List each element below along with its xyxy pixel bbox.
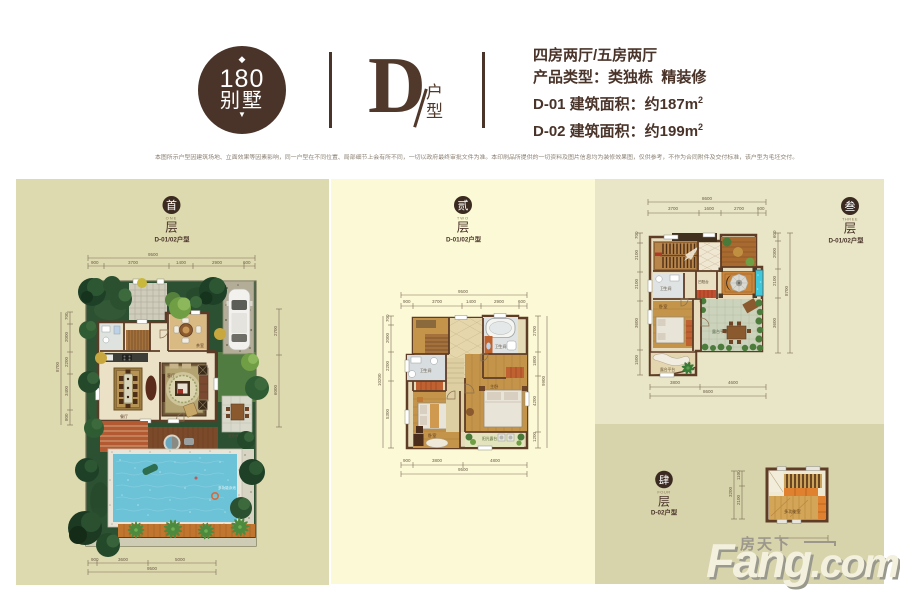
svg-text:1400: 1400 <box>466 299 477 304</box>
svg-text:2700: 2700 <box>273 325 278 336</box>
svg-text:3800: 3800 <box>670 380 681 385</box>
svg-text:8600: 8600 <box>702 196 713 201</box>
svg-text:D-01/02户型: D-01/02户型 <box>155 235 191 244</box>
svg-text:餐厅: 餐厅 <box>120 413 128 419</box>
svg-text:3700: 3700 <box>668 206 679 211</box>
svg-text:3600: 3600 <box>772 317 777 328</box>
svg-text:9500: 9500 <box>458 289 469 294</box>
svg-text:3600: 3600 <box>634 317 639 328</box>
svg-text:5300: 5300 <box>385 408 390 419</box>
svg-text:客厅: 客厅 <box>167 372 175 378</box>
svg-text:2000: 2000 <box>772 247 777 258</box>
svg-text:贰: 贰 <box>458 198 469 212</box>
svg-text:9500: 9500 <box>458 467 469 472</box>
svg-text:3200: 3200 <box>728 486 733 497</box>
svg-text:9900: 9900 <box>541 375 546 386</box>
svg-text:600: 600 <box>772 230 777 238</box>
svg-text:2700: 2700 <box>532 325 537 336</box>
svg-text:主卧: 主卧 <box>490 383 498 390</box>
svg-text:700: 700 <box>64 312 69 320</box>
svg-text:卧室: 卧室 <box>659 303 667 310</box>
svg-text:700: 700 <box>634 231 639 239</box>
svg-text:2100: 2100 <box>772 275 777 286</box>
svg-text:2100: 2100 <box>736 494 741 505</box>
svg-text:5000: 5000 <box>175 557 186 562</box>
svg-text:D-01/02户型: D-01/02户型 <box>446 235 482 244</box>
svg-text:露台平台: 露台平台 <box>660 367 675 372</box>
svg-text:2100: 2100 <box>634 278 639 289</box>
svg-text:阳光露台: 阳光露台 <box>482 436 497 441</box>
svg-text:2200: 2200 <box>64 356 69 367</box>
svg-text:900: 900 <box>403 458 411 463</box>
svg-text:9500: 9500 <box>147 566 158 571</box>
svg-text:凹阳台: 凹阳台 <box>698 279 709 284</box>
svg-text:1100: 1100 <box>736 470 741 480</box>
svg-text:卫生间: 卫生间 <box>660 286 672 291</box>
svg-text:卫生间: 卫生间 <box>495 344 507 349</box>
svg-text:4600: 4600 <box>728 380 739 385</box>
svg-text:D-01/02户型: D-01/02户型 <box>829 236 865 245</box>
svg-text:1200: 1200 <box>532 431 537 442</box>
svg-text:9500: 9500 <box>148 252 159 257</box>
svg-text:多功能泳池: 多功能泳池 <box>218 485 236 490</box>
svg-text:700: 700 <box>385 314 390 322</box>
svg-text:1800: 1800 <box>532 355 537 366</box>
svg-text:8700: 8700 <box>784 285 789 296</box>
svg-text:首: 首 <box>166 198 177 212</box>
svg-text:4200: 4200 <box>532 395 537 406</box>
svg-text:2100: 2100 <box>634 249 639 260</box>
svg-text:卧室: 卧室 <box>428 432 436 439</box>
svg-text:多功能室: 多功能室 <box>784 508 801 515</box>
svg-text:800: 800 <box>64 413 69 421</box>
svg-text:3700: 3700 <box>128 260 139 265</box>
svg-text:层: 层 <box>165 221 178 235</box>
svg-text:1600: 1600 <box>704 206 715 211</box>
svg-text:D-02户型: D-02户型 <box>651 508 678 517</box>
svg-text:8700: 8700 <box>55 361 60 372</box>
svg-text:8600: 8600 <box>703 389 714 394</box>
svg-text:2700: 2700 <box>734 206 745 211</box>
svg-text:3700: 3700 <box>432 299 443 304</box>
svg-text:3600: 3600 <box>118 557 129 562</box>
svg-text:叁: 叁 <box>845 199 856 213</box>
svg-text:900: 900 <box>91 557 99 562</box>
svg-text:2900: 2900 <box>212 260 223 265</box>
svg-text:2900: 2900 <box>494 299 505 304</box>
svg-text:层: 层 <box>658 495 670 509</box>
svg-text:卫生间: 卫生间 <box>420 368 432 373</box>
svg-text:1500: 1500 <box>634 354 639 365</box>
svg-text:10200: 10200 <box>377 373 382 386</box>
svg-text:1400: 1400 <box>176 260 187 265</box>
svg-text:3400: 3400 <box>64 385 69 396</box>
svg-text:3800: 3800 <box>432 458 443 463</box>
svg-text:900: 900 <box>403 299 411 304</box>
svg-text:茶室: 茶室 <box>196 342 204 348</box>
svg-text:2000: 2000 <box>64 331 69 342</box>
svg-text:2000: 2000 <box>385 332 390 343</box>
svg-text:层: 层 <box>844 222 857 236</box>
svg-text:900: 900 <box>91 260 99 265</box>
svg-text:4800: 4800 <box>490 458 501 463</box>
svg-text:2200: 2200 <box>385 360 390 371</box>
svg-text:6000: 6000 <box>273 384 278 395</box>
svg-text:层: 层 <box>457 221 470 235</box>
svg-text:肆: 肆 <box>659 475 670 487</box>
